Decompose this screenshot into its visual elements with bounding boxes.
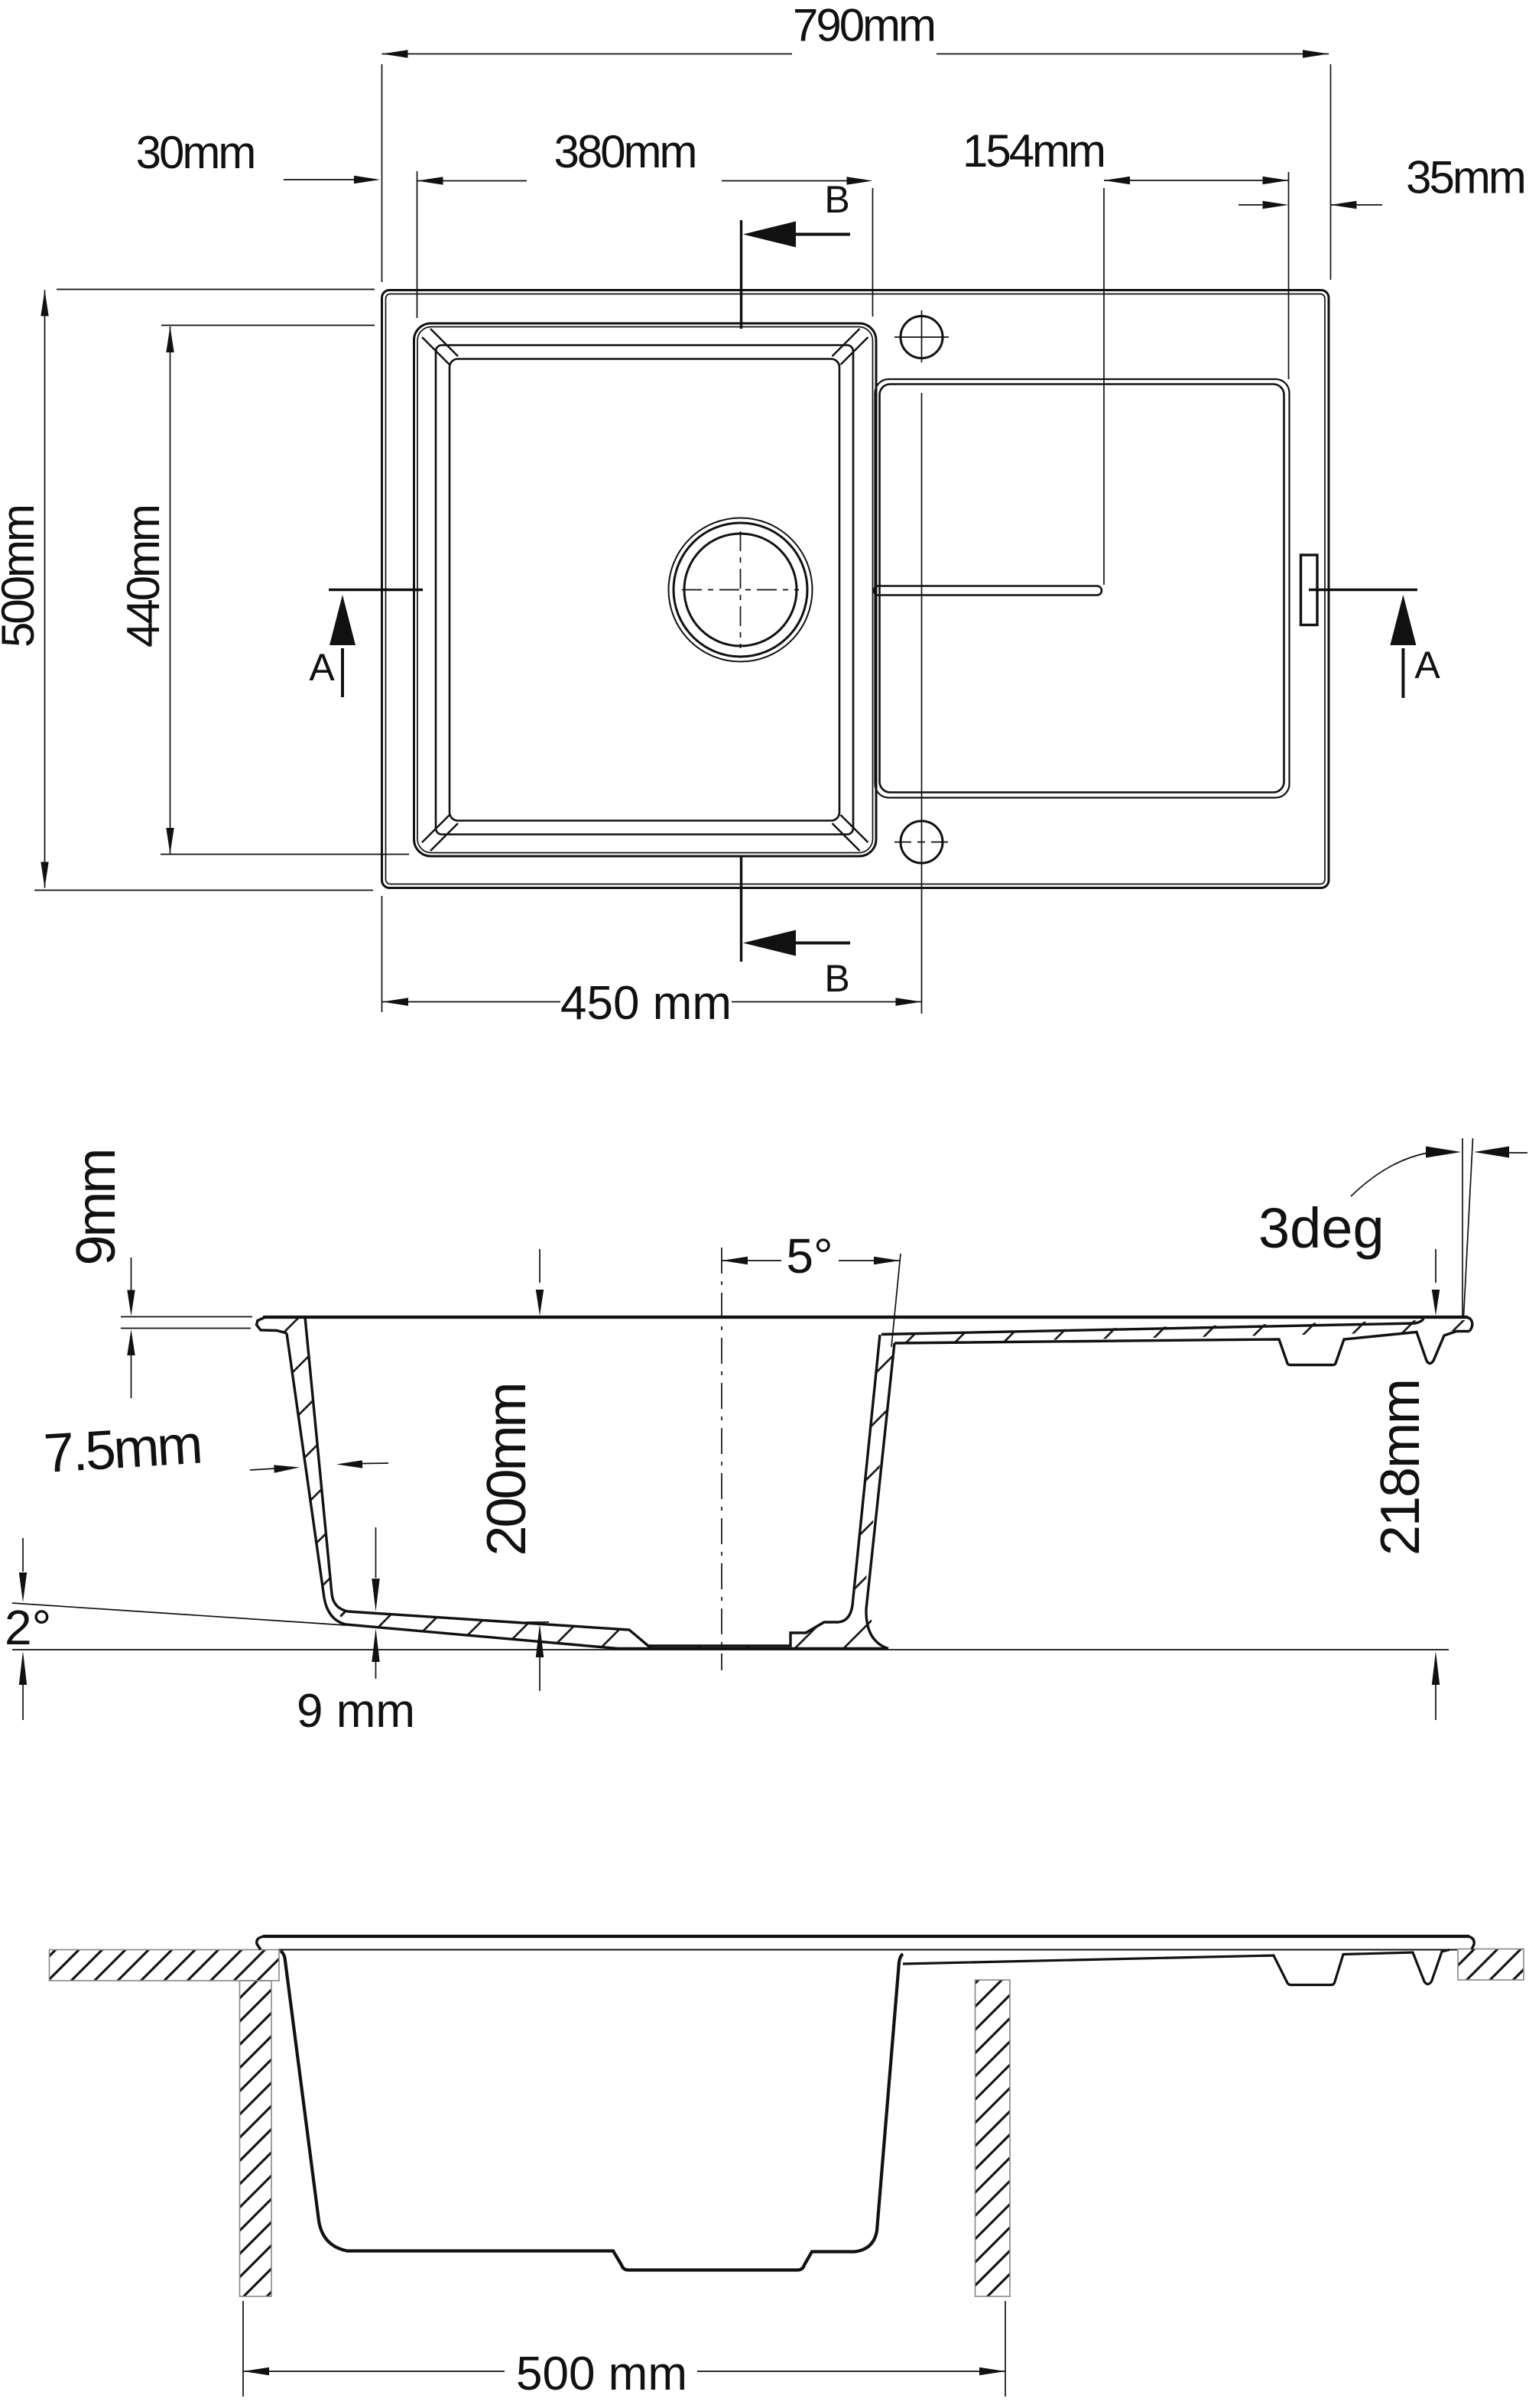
svg-text:200mm: 200mm	[476, 1384, 537, 1556]
svg-text:380mm: 380mm	[553, 126, 695, 177]
svg-text:A: A	[1414, 644, 1440, 686]
svg-text:7.5mm: 7.5mm	[42, 1414, 203, 1485]
svg-text:9 mm: 9 mm	[297, 1685, 415, 1738]
svg-text:500 mm: 500 mm	[516, 2348, 687, 2400]
svg-text:30mm: 30mm	[136, 127, 255, 178]
svg-text:35mm: 35mm	[1406, 152, 1524, 203]
svg-text:5°: 5°	[786, 1228, 833, 1284]
svg-text:500mm: 500mm	[0, 506, 44, 647]
svg-text:B: B	[824, 178, 849, 221]
svg-text:450 mm: 450 mm	[560, 977, 732, 1030]
svg-text:2°: 2°	[5, 1600, 51, 1655]
svg-text:440mm: 440mm	[118, 506, 169, 647]
svg-text:218mm: 218mm	[1370, 1380, 1431, 1556]
svg-text:9mm: 9mm	[66, 1150, 127, 1266]
svg-text:3deg: 3deg	[1258, 1196, 1385, 1260]
svg-text:A: A	[309, 646, 335, 689]
svg-text:790mm: 790mm	[793, 0, 934, 51]
svg-text:154mm: 154mm	[963, 125, 1104, 177]
svg-text:B: B	[824, 957, 849, 1000]
